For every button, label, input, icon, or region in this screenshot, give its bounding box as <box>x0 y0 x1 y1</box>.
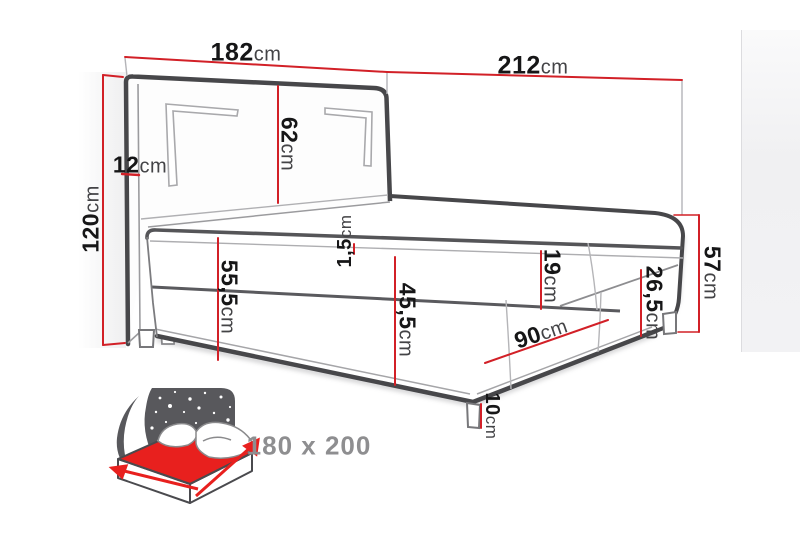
dim-label-headboard-depth: 12cm <box>113 154 167 177</box>
size-badge: 180 x 200 <box>247 431 372 462</box>
dim-label-mattress-height: 19cm <box>541 249 564 303</box>
dim-label-height-no-topper: 55,5cm <box>218 260 241 334</box>
dim-label-base-height: 26,5cm <box>643 266 666 340</box>
dim-label-mattress-plus-base: 45,5cm <box>396 283 419 357</box>
dim-label-leg-height: 10cm <box>482 393 502 440</box>
bed-line-drawing <box>0 0 800 533</box>
dim-label-headboard-width: 182cm <box>211 41 282 66</box>
size-icon <box>112 388 258 503</box>
dim-label-headboard-height: 120cm <box>80 185 103 253</box>
dim-line-120 <box>103 75 125 345</box>
dim-label-total-height: 57cm <box>701 246 724 300</box>
dim-label-headboard-above-mattress: 62cm <box>278 117 301 171</box>
bed-dimension-diagram: 182cm 212cm 120cm 12cm 62cm 55,5cm 1,5cm… <box>0 0 800 533</box>
dim-label-topper-height: 1,5cm <box>335 215 355 268</box>
dim-label-total-length: 212cm <box>498 54 569 79</box>
